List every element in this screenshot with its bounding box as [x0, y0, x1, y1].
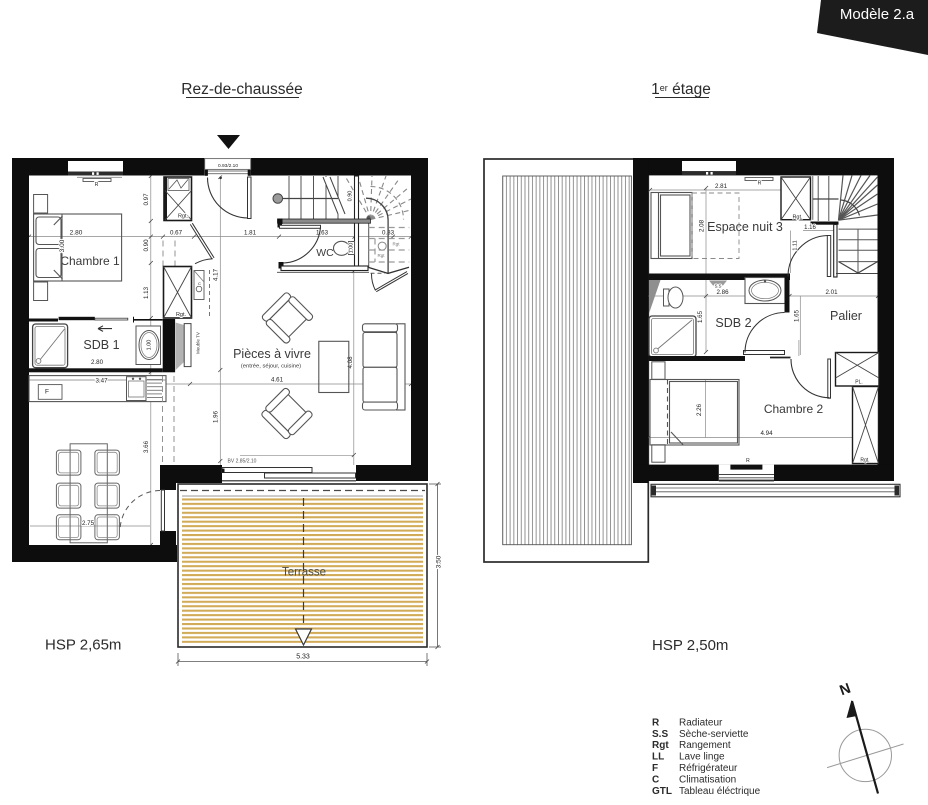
svg-text:2.81: 2.81: [715, 183, 728, 190]
svg-text:1.63: 1.63: [316, 230, 329, 237]
svg-text:0.90: 0.90: [143, 239, 150, 252]
svg-text:R: R: [746, 458, 750, 464]
svg-text:Espace nuit 3: Espace nuit 3: [707, 220, 783, 234]
svg-text:Palier: Palier: [830, 309, 862, 323]
svg-text:Rgt.: Rgt.: [176, 312, 187, 318]
svg-text:Pièces à vivre: Pièces à vivre: [233, 347, 311, 361]
svg-text:4.08: 4.08: [347, 356, 354, 369]
svg-text:2.80: 2.80: [91, 359, 104, 366]
svg-text:R: R: [758, 180, 762, 186]
svg-text:Rez-de-chaussée: Rez-de-chaussée: [181, 81, 302, 98]
svg-text:C: C: [652, 774, 659, 785]
svg-text:Terrasse: Terrasse: [282, 567, 326, 579]
svg-text:3.50: 3.50: [436, 555, 443, 568]
svg-text:1.65: 1.65: [697, 310, 704, 323]
svg-text:Rgt.: Rgt.: [860, 458, 869, 464]
svg-text:(entrée, séjour, cuisine): (entrée, séjour, cuisine): [241, 364, 301, 370]
svg-text:F: F: [45, 389, 49, 396]
svg-text:1.11: 1.11: [793, 240, 799, 250]
svg-text:1.96: 1.96: [213, 410, 220, 423]
svg-text:BV 2.85/2.10: BV 2.85/2.10: [228, 459, 257, 465]
svg-text:WC: WC: [316, 247, 334, 259]
svg-text:HSP 2,65m: HSP 2,65m: [45, 637, 121, 654]
svg-text:2.86: 2.86: [716, 289, 729, 296]
svg-text:F: F: [652, 763, 658, 774]
svg-text:0.97: 0.97: [143, 193, 150, 206]
svg-text:4.61: 4.61: [271, 377, 284, 384]
svg-text:2.75: 2.75: [82, 520, 95, 527]
svg-text:Rgt.: Rgt.: [178, 213, 189, 219]
svg-text:3.47: 3.47: [95, 378, 108, 385]
svg-text:2.80: 2.80: [70, 230, 83, 237]
svg-text:Réfrigérateur: Réfrigérateur: [679, 763, 738, 774]
svg-text:Rgt: Rgt: [652, 740, 669, 751]
svg-text:1.00: 1.00: [349, 243, 355, 254]
svg-text:Rangement: Rangement: [679, 740, 731, 751]
svg-text:3.00: 3.00: [59, 239, 66, 252]
svg-text:Modèle 2.a: Modèle 2.a: [840, 6, 915, 23]
svg-text:0.93/2.10: 0.93/2.10: [218, 163, 238, 169]
svg-text:1.16: 1.16: [804, 225, 816, 231]
svg-text:SDB 2: SDB 2: [715, 316, 751, 330]
svg-text:Tableau éléctrique: Tableau éléctrique: [679, 786, 761, 797]
svg-text:1.81: 1.81: [244, 229, 257, 236]
svg-text:4.94: 4.94: [760, 430, 773, 437]
svg-text:2.26: 2.26: [696, 403, 703, 416]
svg-text:HSP 2,50m: HSP 2,50m: [652, 637, 728, 654]
svg-text:Rgt: Rgt: [377, 253, 385, 258]
svg-text:GTL: GTL: [652, 786, 672, 797]
svg-text:Rgt.: Rgt.: [792, 214, 803, 220]
svg-text:5.33: 5.33: [296, 654, 310, 661]
svg-text:Meuble TV: Meuble TV: [196, 332, 201, 354]
svg-text:SDB 1: SDB 1: [83, 338, 119, 352]
svg-text:R: R: [95, 182, 99, 188]
svg-text:Chambre 1: Chambre 1: [60, 254, 120, 268]
svg-text:1.00: 1.00: [147, 340, 153, 351]
svg-text:3.66: 3.66: [143, 440, 150, 453]
svg-text:Rgt: Rgt: [392, 242, 400, 247]
svg-text:2.01: 2.01: [825, 289, 838, 296]
svg-text:2.08: 2.08: [699, 219, 706, 232]
svg-text:LL: LL: [652, 752, 664, 763]
svg-text:R: R: [652, 717, 660, 728]
svg-text:Sèche-serviette: Sèche-serviette: [679, 729, 749, 740]
svg-text:Lave linge: Lave linge: [679, 752, 725, 763]
svg-text:Climatisation: Climatisation: [679, 774, 736, 785]
svg-text:0.67: 0.67: [170, 230, 183, 237]
svg-text:Chambre 2: Chambre 2: [764, 402, 824, 416]
svg-text:S.S: S.S: [652, 729, 668, 740]
svg-text:PL.: PL.: [855, 380, 863, 386]
svg-text:Radiateur: Radiateur: [679, 717, 723, 728]
svg-text:1.65: 1.65: [794, 309, 801, 322]
svg-text:4.17: 4.17: [213, 268, 220, 281]
svg-text:C: C: [198, 281, 201, 286]
svg-text:1.13: 1.13: [143, 286, 150, 299]
svg-text:0.90: 0.90: [348, 191, 354, 202]
svg-text:S.S: S.S: [715, 284, 722, 289]
